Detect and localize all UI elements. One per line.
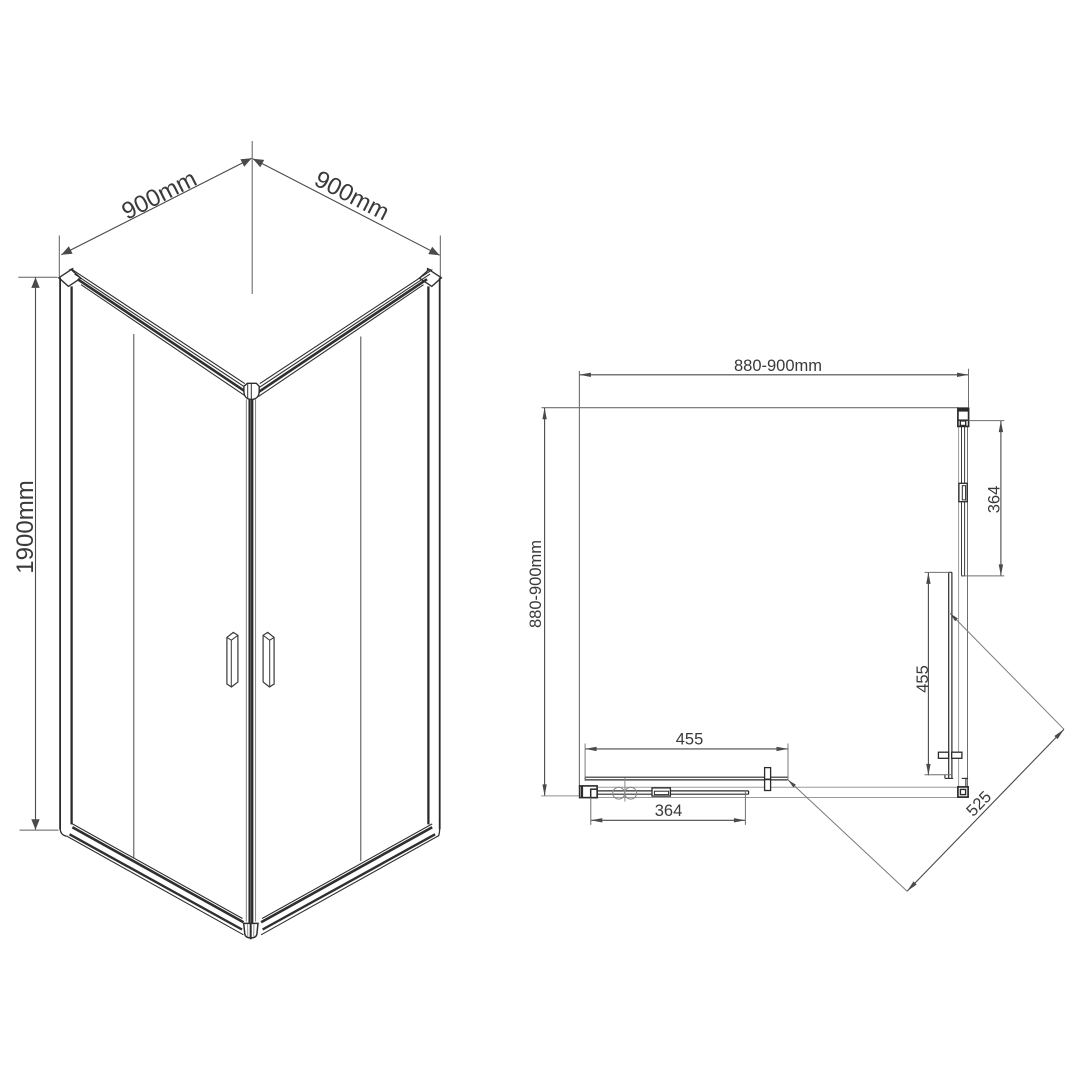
svg-text:455: 455 <box>676 731 704 749</box>
svg-text:455: 455 <box>914 665 932 693</box>
svg-text:364: 364 <box>655 802 683 820</box>
svg-text:1900mm: 1900mm <box>12 480 39 573</box>
svg-text:880-900mm: 880-900mm <box>734 357 822 375</box>
svg-text:880-900mm: 880-900mm <box>527 540 545 628</box>
svg-text:364: 364 <box>985 486 1003 514</box>
